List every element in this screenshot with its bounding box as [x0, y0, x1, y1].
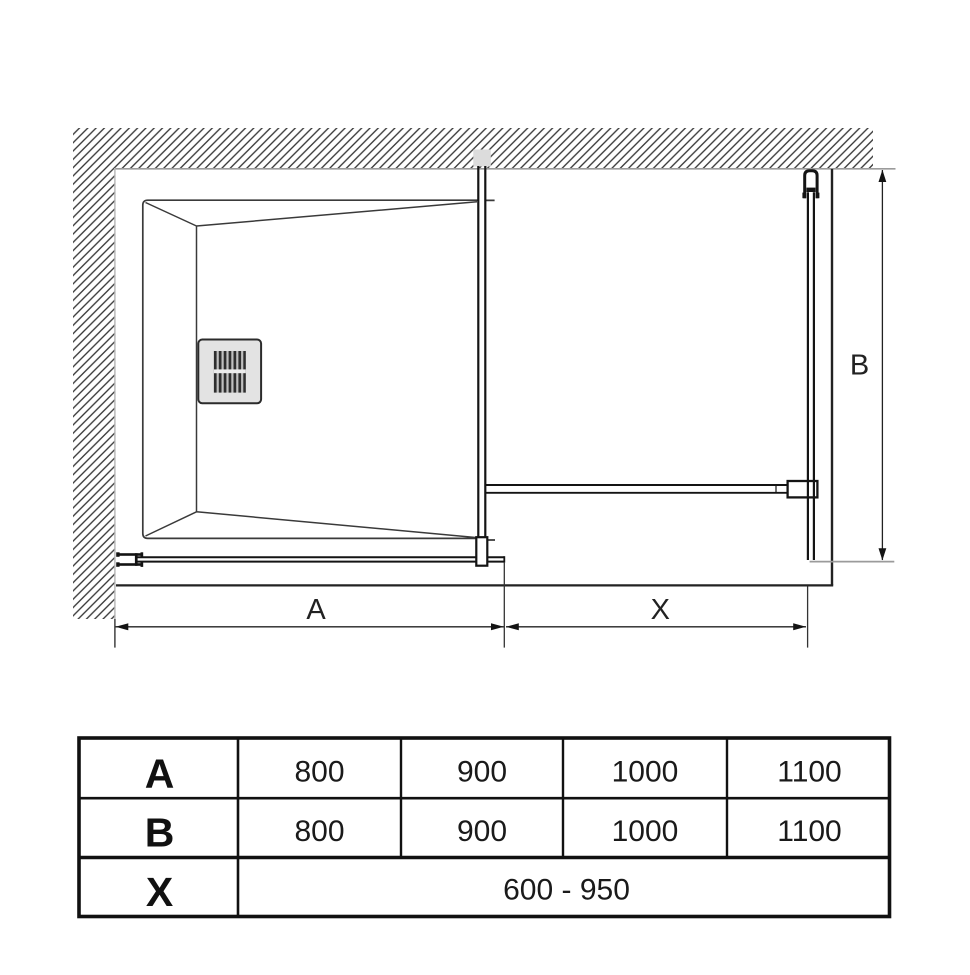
svg-text:1100: 1100 [777, 756, 842, 789]
svg-text:1100: 1100 [777, 815, 842, 848]
svg-text:900: 900 [457, 756, 507, 789]
svg-text:B: B [145, 809, 175, 855]
svg-text:800: 800 [294, 756, 344, 789]
svg-text:900: 900 [457, 815, 507, 848]
svg-text:B: B [850, 350, 869, 382]
svg-text:1000: 1000 [612, 756, 679, 789]
svg-text:X: X [651, 594, 670, 626]
svg-text:A: A [306, 594, 326, 626]
svg-text:A: A [145, 750, 175, 796]
svg-text:800: 800 [294, 815, 344, 848]
svg-text:600 - 950: 600 - 950 [503, 873, 630, 906]
svg-text:X: X [146, 869, 173, 915]
svg-text:1000: 1000 [612, 815, 679, 848]
